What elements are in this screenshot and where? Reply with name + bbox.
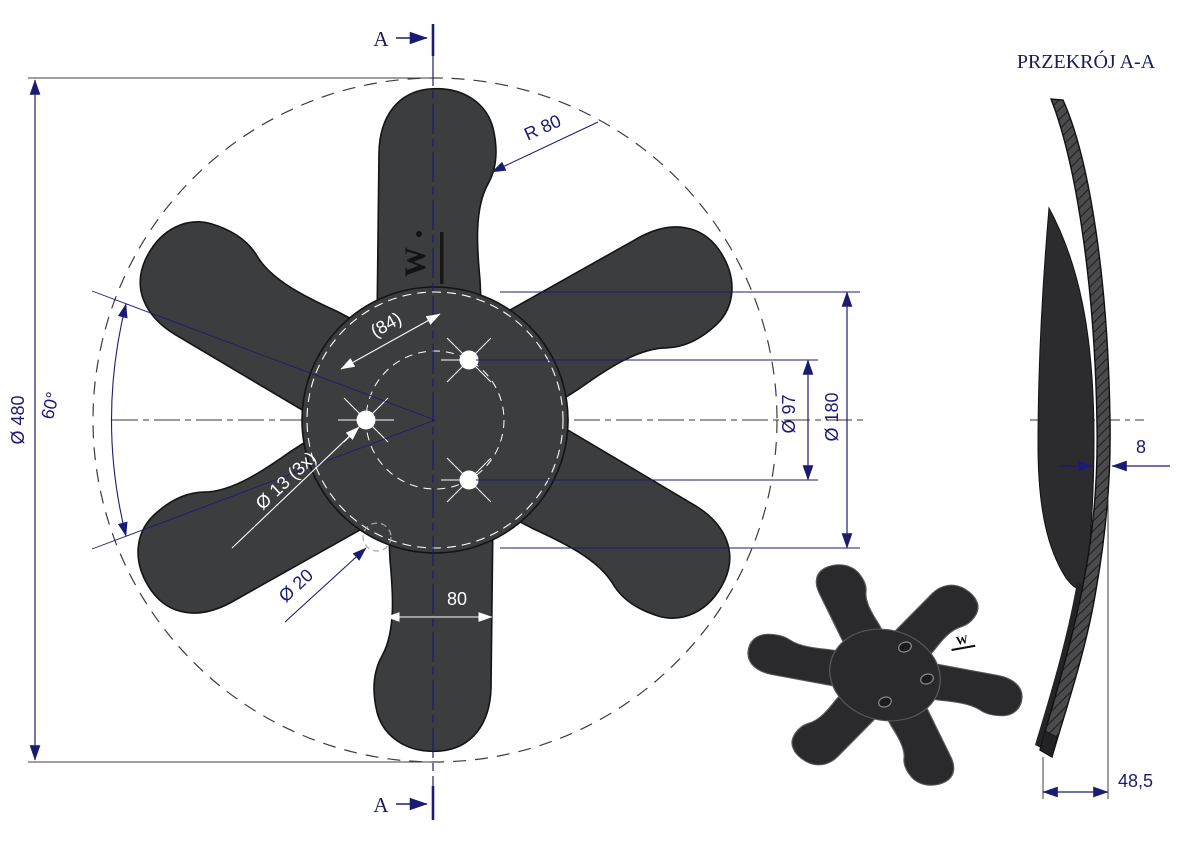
dim-97-label: Ø 97 [779,394,799,433]
dim-r80-label: R 80 [521,111,564,145]
iso-view: W [722,534,1049,816]
section-marker-bottom: A [373,793,427,817]
section-view: PRZEKRÓJ A-A 8 48,5 [1017,49,1170,799]
section-letter-top: A [373,27,389,51]
logo-dot [416,231,422,237]
drawing-canvas: W A A Ø 480 60° [0,0,1191,842]
behind-blade [1038,208,1094,589]
front-view: W A A Ø 480 60° [8,24,864,820]
technical-drawing: W A A Ø 480 60° [0,0,1191,842]
dim-60-label: 60° [37,390,63,421]
section-marker-top: A [373,27,427,51]
dim-80-label: 80 [447,589,467,609]
dim-8-label: 8 [1136,437,1146,457]
brand-logo-mark: W [399,247,432,277]
logo-text-column [440,232,444,284]
section-letter-bottom: A [373,793,389,817]
dim-480-label: Ø 480 [8,395,28,444]
dim-485-label: 48,5 [1118,771,1153,791]
section-title: PRZEKRÓJ A-A [1017,49,1156,73]
dim-tip-radius: R 80 [492,111,598,172]
dim-180-label: Ø 180 [822,392,842,441]
iso-brand-logo: W [949,631,975,651]
iso-logo-mark: W [955,632,969,648]
